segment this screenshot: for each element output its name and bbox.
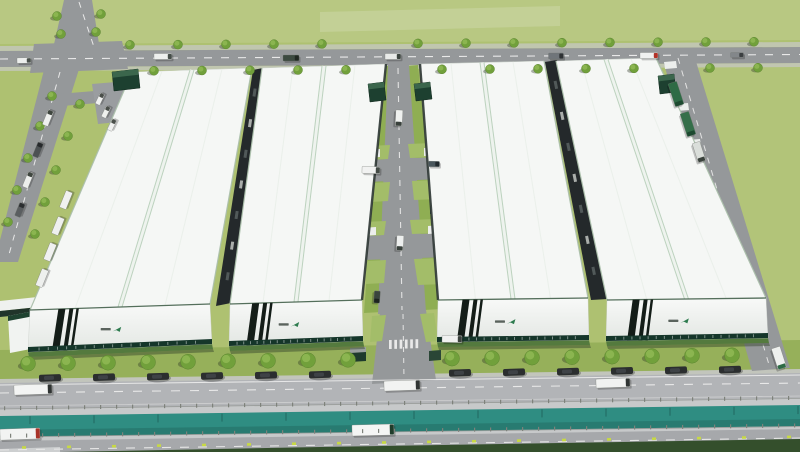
canal-post bbox=[122, 432, 123, 436]
canal-post bbox=[36, 406, 37, 410]
dock-platform bbox=[664, 61, 677, 69]
canal-post bbox=[340, 402, 341, 406]
canal-post bbox=[634, 426, 635, 430]
canal-post bbox=[196, 404, 197, 408]
tree-highlight bbox=[222, 355, 230, 363]
tree-highlight bbox=[48, 92, 53, 97]
truck-top-1 bbox=[154, 53, 174, 61]
canal-post bbox=[356, 402, 357, 406]
tree-highlight bbox=[53, 12, 58, 17]
tree-highlight bbox=[41, 198, 46, 203]
canal-post bbox=[308, 402, 309, 406]
tree-highlight bbox=[182, 355, 190, 363]
canal-post bbox=[90, 433, 91, 437]
road-marker bbox=[787, 436, 791, 439]
canal-post bbox=[596, 398, 597, 402]
crosswalk-stripe bbox=[416, 339, 419, 348]
canal-post bbox=[500, 400, 501, 404]
canal-post bbox=[388, 401, 389, 405]
tree-highlight bbox=[126, 41, 131, 46]
canal-post bbox=[362, 429, 363, 433]
truck-top-red-cab bbox=[640, 52, 660, 60]
tree-highlight bbox=[22, 357, 30, 365]
canal-post bbox=[714, 425, 715, 429]
canal-post bbox=[756, 396, 757, 400]
canal-post bbox=[484, 400, 485, 404]
truck-central-north bbox=[393, 110, 403, 128]
canal-post bbox=[740, 397, 741, 401]
tree-highlight bbox=[510, 39, 515, 44]
tree-highlight bbox=[174, 41, 179, 46]
canal-post bbox=[378, 429, 379, 433]
tree-highlight bbox=[702, 38, 707, 43]
road-marker bbox=[382, 441, 386, 444]
canal-post bbox=[724, 397, 725, 401]
tree-highlight bbox=[606, 350, 614, 358]
truck-main-west bbox=[14, 384, 54, 397]
guard-booth bbox=[429, 350, 441, 361]
crosswalk-stripe bbox=[410, 339, 413, 348]
road-marker bbox=[427, 441, 431, 444]
scene-svg bbox=[0, 0, 800, 452]
tree-highlight bbox=[462, 39, 467, 44]
canal-post bbox=[778, 424, 779, 428]
road-marker bbox=[697, 437, 701, 440]
tree-highlight bbox=[630, 65, 635, 70]
vehicle-body bbox=[14, 384, 52, 395]
canal-post bbox=[324, 402, 325, 406]
canal-post bbox=[708, 397, 709, 401]
tree-highlight bbox=[654, 38, 659, 43]
canal-post bbox=[538, 427, 539, 431]
truck-top-4 bbox=[548, 53, 565, 61]
car-roof bbox=[454, 371, 464, 375]
vehicle-cab bbox=[458, 336, 462, 342]
canal-post bbox=[660, 398, 661, 402]
vehicle-cab bbox=[626, 378, 630, 386]
canal-post bbox=[292, 402, 293, 406]
truck-top-5 bbox=[730, 52, 745, 59]
truck-main-east bbox=[596, 378, 632, 390]
warehouse-4-logo-text bbox=[668, 320, 678, 322]
truck-bottom-green-cab bbox=[352, 424, 396, 438]
tree-highlight bbox=[438, 65, 443, 70]
tree-highlight bbox=[150, 67, 155, 72]
tree-highlight bbox=[31, 230, 36, 235]
road-marker bbox=[742, 436, 746, 439]
truck-main-center bbox=[384, 380, 422, 393]
tree-highlight bbox=[606, 39, 611, 44]
road-marker bbox=[562, 439, 566, 442]
canal-post bbox=[442, 428, 443, 432]
vehicle-cab bbox=[654, 53, 658, 58]
van-gate bbox=[372, 291, 381, 305]
canal-post bbox=[570, 426, 571, 430]
canal-post bbox=[650, 425, 651, 429]
canal-post bbox=[618, 426, 619, 430]
tree-highlight bbox=[24, 154, 29, 159]
tree-highlight bbox=[222, 41, 227, 46]
canal-post bbox=[148, 404, 149, 408]
canal-post bbox=[260, 403, 261, 407]
canal-post bbox=[452, 400, 453, 404]
tree-highlight bbox=[142, 356, 150, 364]
vehicle-cab bbox=[739, 53, 743, 57]
canal-post bbox=[74, 433, 75, 437]
canal-post bbox=[276, 403, 277, 407]
canal-post bbox=[52, 406, 53, 410]
vehicle-cab bbox=[397, 246, 403, 250]
vehicle-cab bbox=[559, 53, 563, 58]
tree-highlight bbox=[76, 100, 81, 105]
vehicle-body bbox=[0, 428, 40, 440]
tree-highlight bbox=[4, 218, 9, 223]
canal-post bbox=[4, 406, 5, 410]
canal-post bbox=[788, 396, 789, 400]
canal-post bbox=[10, 434, 11, 438]
canal-post bbox=[212, 404, 213, 408]
tree-highlight bbox=[246, 66, 251, 71]
car-roof bbox=[260, 373, 270, 377]
canal-post bbox=[234, 431, 235, 435]
vehicle-cab bbox=[48, 384, 52, 393]
vehicle-cab bbox=[416, 380, 420, 389]
canal-post bbox=[26, 434, 27, 438]
tree-highlight bbox=[486, 352, 494, 360]
aerial-render-scene bbox=[0, 0, 800, 452]
truck-top-2 bbox=[283, 55, 301, 63]
canal-post bbox=[116, 405, 117, 409]
car-roof bbox=[206, 374, 216, 378]
canal-post bbox=[730, 424, 731, 428]
road-marker bbox=[337, 442, 341, 445]
canal-post bbox=[170, 432, 171, 436]
canal-post bbox=[532, 399, 533, 403]
canal-post bbox=[794, 423, 795, 427]
canal-post bbox=[202, 431, 203, 435]
car-roof bbox=[152, 374, 162, 378]
truck-bottom-red-cab bbox=[0, 428, 42, 442]
canal-post bbox=[298, 430, 299, 434]
canal-post bbox=[180, 404, 181, 408]
canal-post bbox=[628, 398, 629, 402]
tree-highlight bbox=[64, 132, 69, 137]
road-marker bbox=[607, 438, 611, 441]
canal-post bbox=[186, 431, 187, 435]
tree-highlight bbox=[726, 349, 734, 357]
canal-post bbox=[244, 403, 245, 407]
crosswalk-stripe bbox=[405, 340, 408, 349]
tree-highlight bbox=[318, 40, 323, 45]
canal-post bbox=[554, 427, 555, 431]
road-marker bbox=[292, 442, 296, 445]
vehicle-cab bbox=[396, 122, 402, 126]
car-central-spur bbox=[428, 161, 441, 169]
canal-post bbox=[644, 398, 645, 402]
canal-post bbox=[602, 426, 603, 430]
canal-post bbox=[436, 401, 437, 405]
crosswalk-stripe bbox=[400, 340, 403, 349]
canal-post bbox=[68, 405, 69, 409]
road-marker bbox=[67, 446, 71, 449]
tree-highlight bbox=[582, 65, 587, 70]
vehicle-cab bbox=[435, 162, 439, 167]
vehicle-cab bbox=[374, 299, 379, 303]
tree-highlight bbox=[526, 351, 534, 359]
tree-highlight bbox=[97, 10, 102, 15]
tree-highlight bbox=[92, 28, 97, 33]
canal-post bbox=[372, 401, 373, 405]
vehicle-body bbox=[384, 380, 420, 391]
tree-highlight bbox=[706, 64, 711, 69]
canal-post bbox=[100, 405, 101, 409]
vehicle-cab bbox=[397, 54, 401, 59]
canal-post bbox=[84, 405, 85, 409]
car-roof bbox=[44, 376, 54, 380]
tree-highlight bbox=[294, 66, 299, 71]
canal-post bbox=[42, 433, 43, 437]
canal-post bbox=[154, 432, 155, 436]
tree-highlight bbox=[262, 354, 270, 362]
canal-post bbox=[132, 405, 133, 409]
tree-highlight bbox=[558, 39, 563, 44]
road-marker bbox=[652, 437, 656, 440]
vehicle-cab bbox=[295, 55, 299, 60]
road-marker bbox=[517, 439, 521, 442]
canal-post bbox=[682, 425, 683, 429]
canal-post bbox=[772, 396, 773, 400]
warehouse-1-logo-text bbox=[101, 328, 111, 330]
canal-post bbox=[420, 401, 421, 405]
road-marker bbox=[202, 444, 206, 447]
verge-patch bbox=[366, 260, 386, 284]
canal-post bbox=[474, 428, 475, 432]
canal-post bbox=[666, 425, 667, 429]
canal-post bbox=[522, 427, 523, 431]
canal-post bbox=[516, 400, 517, 404]
canal-post bbox=[164, 404, 165, 408]
tree-highlight bbox=[446, 352, 454, 360]
vehicle-body bbox=[352, 424, 394, 436]
canal-post bbox=[138, 432, 139, 436]
vehicle-cab bbox=[376, 167, 380, 173]
canal-post bbox=[586, 426, 587, 430]
canal-post bbox=[266, 430, 267, 434]
road-marker bbox=[157, 444, 161, 447]
canal-post bbox=[404, 401, 405, 405]
canal-post bbox=[346, 429, 347, 433]
tree-highlight bbox=[342, 353, 350, 361]
canal-post bbox=[250, 431, 251, 435]
car-roof bbox=[314, 372, 324, 376]
truck-top-3 bbox=[385, 53, 403, 61]
canal-post bbox=[330, 430, 331, 434]
tree-highlight bbox=[414, 40, 419, 45]
tree-highlight bbox=[566, 351, 574, 359]
canal-post bbox=[490, 427, 491, 431]
canal-post bbox=[468, 400, 469, 404]
canal-post bbox=[564, 399, 565, 403]
road-marker bbox=[22, 446, 26, 449]
tree-highlight bbox=[57, 30, 62, 35]
canal-post bbox=[410, 429, 411, 433]
vehicle-cab bbox=[390, 424, 394, 434]
canal-post bbox=[426, 428, 427, 432]
tree-highlight bbox=[270, 40, 275, 45]
canal-post bbox=[506, 427, 507, 431]
car-roof bbox=[616, 369, 626, 373]
canal-post bbox=[612, 398, 613, 402]
canal-post bbox=[580, 399, 581, 403]
crosswalk-stripe bbox=[389, 340, 392, 349]
tree-highlight bbox=[342, 66, 347, 71]
canal-post bbox=[548, 399, 549, 403]
tree-highlight bbox=[102, 356, 110, 364]
vehicle-cab bbox=[168, 54, 172, 59]
canal-post bbox=[58, 433, 59, 437]
truck-gate bbox=[442, 335, 464, 344]
tree-highlight bbox=[686, 349, 694, 357]
tree-highlight bbox=[13, 186, 18, 191]
road-marker bbox=[112, 445, 116, 448]
tree-highlight bbox=[198, 67, 203, 72]
warehouse-2-logo-text bbox=[279, 323, 289, 325]
canal-post bbox=[698, 425, 699, 429]
canal-post bbox=[746, 424, 747, 428]
tree-highlight bbox=[302, 354, 310, 362]
vehicle-cab bbox=[36, 428, 40, 438]
truck-top-6 bbox=[17, 58, 33, 66]
canal-post bbox=[458, 428, 459, 432]
warehouse-3-logo-text bbox=[495, 320, 505, 322]
canal-post bbox=[218, 431, 219, 435]
tree-highlight bbox=[62, 357, 70, 365]
canal-post bbox=[762, 424, 763, 428]
truck-central-dock bbox=[362, 166, 382, 175]
car-roof bbox=[508, 370, 518, 374]
canal-post bbox=[228, 403, 229, 407]
car-roof bbox=[670, 368, 680, 372]
canal-post bbox=[692, 397, 693, 401]
road-marker bbox=[247, 443, 251, 446]
canal-post bbox=[314, 430, 315, 434]
car-roof bbox=[98, 375, 108, 379]
tree-highlight bbox=[646, 350, 654, 358]
canal-post bbox=[676, 397, 677, 401]
car-roof bbox=[562, 369, 572, 373]
road-marker bbox=[472, 440, 476, 443]
canal-post bbox=[20, 406, 21, 410]
tree-highlight bbox=[750, 38, 755, 43]
tree-highlight bbox=[754, 64, 759, 69]
tree-highlight bbox=[534, 65, 539, 70]
crosswalk-stripe bbox=[394, 340, 397, 349]
tree-highlight bbox=[36, 122, 41, 127]
canal-post bbox=[106, 432, 107, 436]
tree-highlight bbox=[486, 65, 491, 70]
truck-central-south bbox=[394, 235, 404, 252]
canal-post bbox=[394, 429, 395, 433]
car-roof bbox=[724, 367, 734, 371]
tree-highlight bbox=[52, 166, 57, 171]
vehicle-body bbox=[596, 378, 630, 388]
vehicle-cab bbox=[27, 58, 31, 63]
canal-post bbox=[282, 430, 283, 434]
